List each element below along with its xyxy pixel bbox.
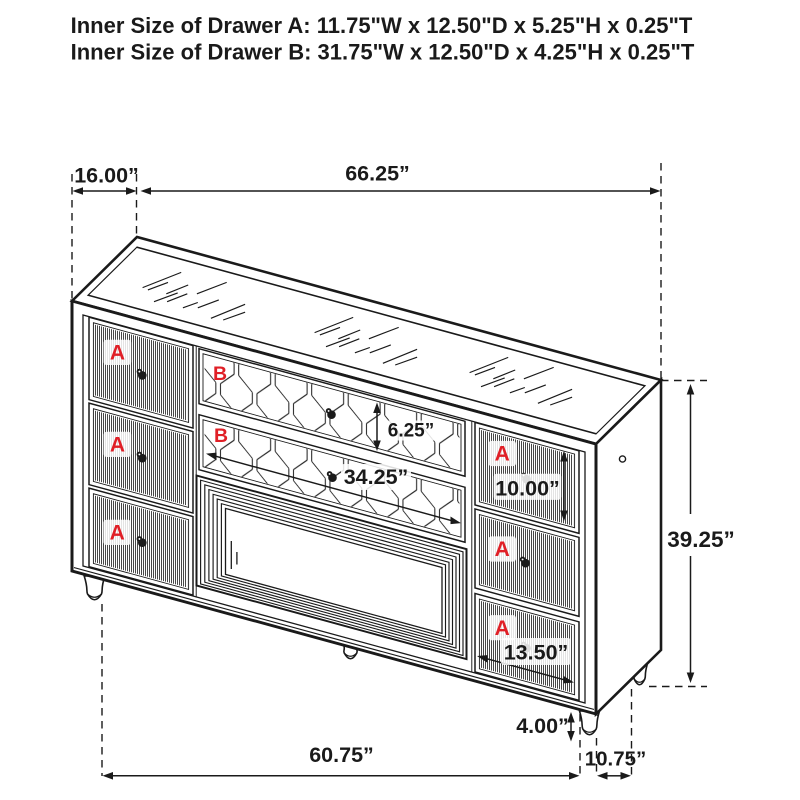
- svg-text:10.75”: 10.75”: [585, 748, 647, 771]
- svg-text:B: B: [213, 363, 227, 385]
- svg-text:A: A: [110, 342, 125, 365]
- svg-text:60.75”: 60.75”: [309, 743, 374, 767]
- svg-text:16.00”: 16.00”: [74, 164, 139, 188]
- svg-text:4.00”: 4.00”: [516, 714, 569, 738]
- svg-text:Inner Size of Drawer A: 11.75": Inner Size of Drawer A: 11.75"W x 12.50"…: [71, 13, 693, 38]
- svg-text:6.25”: 6.25”: [388, 421, 434, 442]
- svg-text:A: A: [110, 434, 125, 457]
- svg-text:A: A: [110, 522, 125, 545]
- svg-text:10.00”: 10.00”: [495, 477, 560, 501]
- svg-text:13.50”: 13.50”: [504, 641, 569, 665]
- svg-text:A: A: [495, 443, 510, 466]
- svg-text:B: B: [214, 425, 228, 447]
- svg-text:66.25”: 66.25”: [345, 162, 410, 186]
- svg-text:A: A: [495, 538, 510, 561]
- svg-text:39.25”: 39.25”: [667, 527, 735, 552]
- svg-text:34.25”: 34.25”: [344, 465, 409, 489]
- svg-text:Inner Size of Drawer B: 31.75": Inner Size of Drawer B: 31.75"W x 12.50"…: [71, 39, 695, 64]
- svg-text:A: A: [495, 617, 510, 640]
